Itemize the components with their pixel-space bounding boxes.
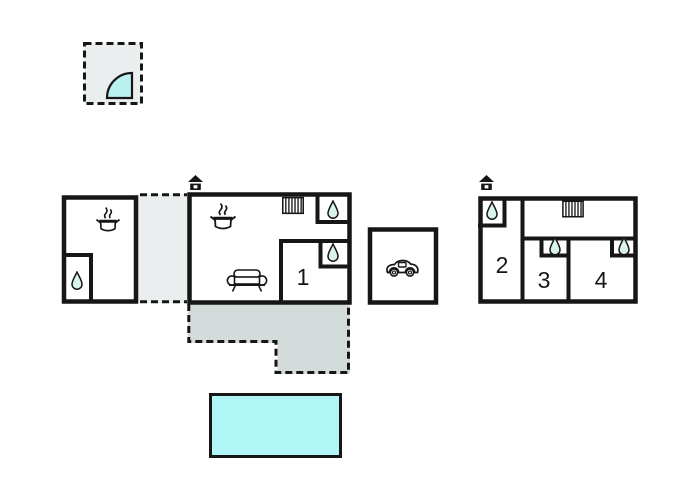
room-3-label: 3 (538, 267, 551, 293)
room-1-label: 1 (297, 264, 310, 290)
main-house-outline (190, 195, 350, 303)
floor-plan-canvas: 1 (0, 0, 700, 500)
passage-area (136, 194, 191, 303)
left-annex (62, 198, 136, 302)
spa-annex (85, 44, 142, 104)
house-icon (188, 175, 203, 190)
stairs-icon (563, 201, 583, 216)
main-house: 1 (188, 175, 350, 303)
passage-fill (136, 194, 191, 303)
garage (370, 230, 436, 303)
room-2-label: 2 (496, 252, 509, 278)
room-4-label: 4 (595, 267, 608, 293)
terrace-area (188, 303, 350, 374)
stairs-icon (283, 198, 303, 214)
floor-plan: 1 (0, 0, 700, 500)
terrace-fill (188, 303, 350, 374)
right-annex: 2 3 4 (478, 175, 636, 302)
swimming-pool (211, 395, 341, 457)
house-icon (479, 175, 494, 190)
